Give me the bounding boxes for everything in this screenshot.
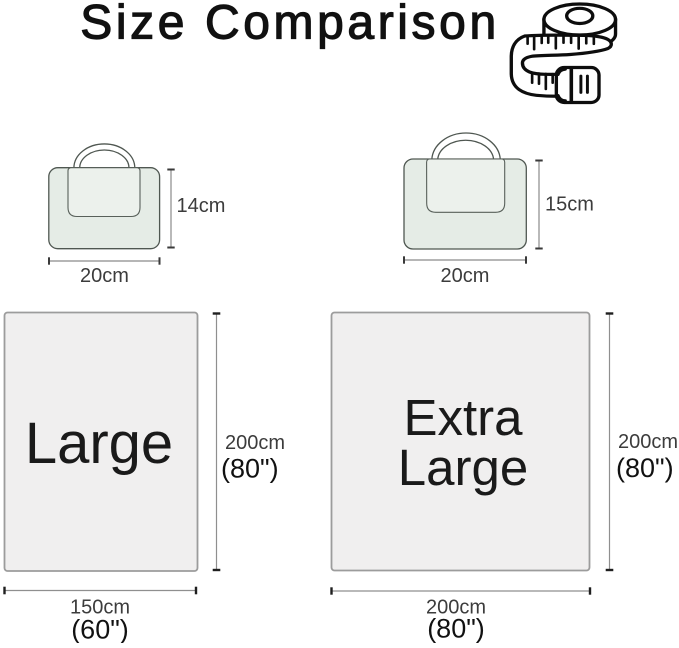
svg-text:Large: Large (25, 411, 173, 476)
svg-text:200cm: 200cm (618, 431, 678, 453)
svg-text:20cm: 20cm (441, 265, 490, 287)
svg-text:200cm: 200cm (225, 432, 285, 454)
svg-text:15cm: 15cm (545, 194, 594, 216)
svg-text:Size Comparison: Size Comparison (80, 0, 499, 50)
svg-text:(80"): (80") (221, 454, 279, 484)
svg-text:(80"): (80") (616, 453, 674, 483)
svg-text:20cm: 20cm (80, 265, 129, 287)
svg-text:(60"): (60") (71, 615, 129, 644)
svg-text:14cm: 14cm (177, 195, 226, 217)
svg-text:(80"): (80") (427, 614, 485, 644)
svg-text:Extra: Extra (403, 389, 523, 446)
svg-text:Large: Large (398, 439, 528, 496)
